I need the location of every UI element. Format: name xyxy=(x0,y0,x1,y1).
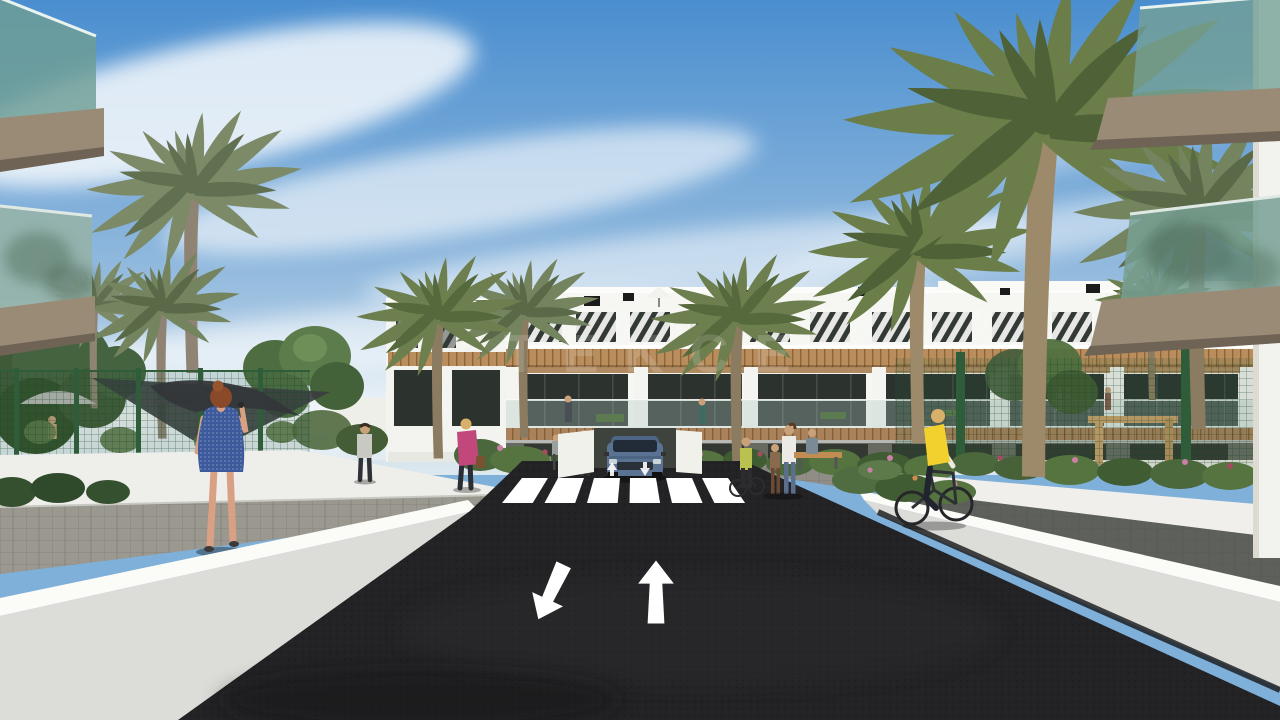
glass-railing xyxy=(1132,0,1280,102)
pink-jacket xyxy=(457,430,479,466)
phone xyxy=(238,402,244,408)
watermark: TEKCE xyxy=(503,324,816,384)
handbag xyxy=(476,456,485,468)
foreground-balcony-mid-left xyxy=(0,206,96,356)
architectural-render: TEKCE xyxy=(0,0,1280,720)
windshield xyxy=(613,440,657,452)
cyclist-head xyxy=(931,409,945,423)
